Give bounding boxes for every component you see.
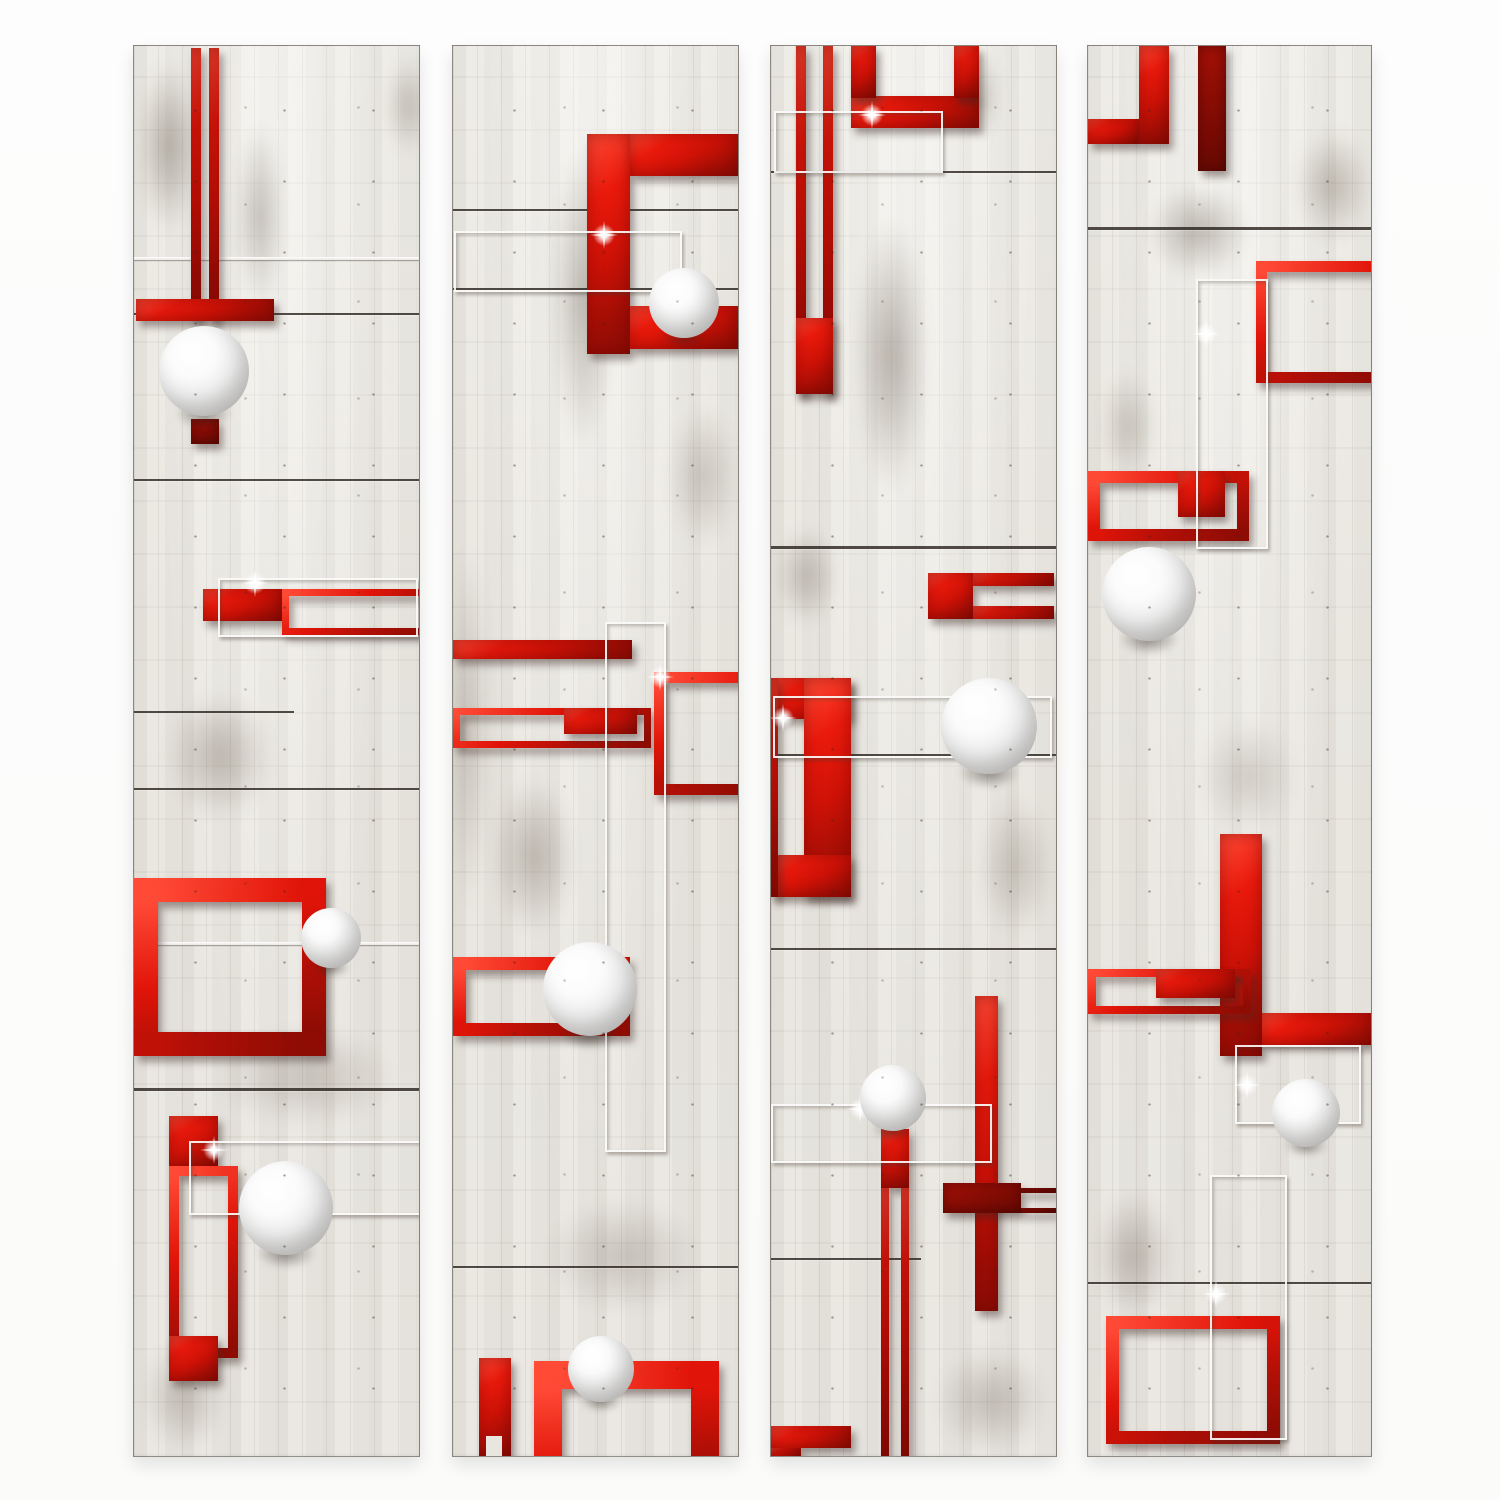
red-bar — [1139, 46, 1169, 144]
plank-seam — [771, 948, 1056, 950]
dark-red-bar — [1021, 1208, 1056, 1213]
silver-wire-frame — [454, 231, 682, 292]
texture-smudge — [133, 45, 214, 266]
silver-wire-frame — [218, 578, 418, 637]
plank-seam — [453, 1266, 738, 1268]
sparkle-icon — [770, 703, 798, 733]
panel-4 — [1087, 45, 1372, 1457]
plank-seam — [1088, 227, 1371, 230]
plank-seam — [134, 788, 419, 790]
texture-smudge — [961, 766, 1057, 966]
texture-smudge — [144, 666, 294, 846]
red-frame — [1256, 261, 1372, 383]
red-bar — [954, 46, 979, 98]
texture-smudge — [1278, 106, 1372, 266]
sparkle-icon — [1191, 319, 1221, 349]
red-bar — [796, 318, 833, 394]
dark-red-bar — [943, 1183, 1021, 1213]
texture-smudge — [653, 376, 739, 576]
plank-seam — [771, 546, 1056, 549]
dark-red-bar — [1198, 46, 1226, 171]
sphere — [568, 1336, 634, 1402]
sphere — [1102, 547, 1196, 641]
red-bar — [1156, 969, 1235, 998]
panel-2 — [452, 45, 739, 1457]
red-bar — [1220, 834, 1262, 1056]
plank-seam — [134, 1088, 419, 1091]
sparkle-icon — [240, 568, 270, 598]
red-bar — [771, 1426, 851, 1448]
red-bar — [630, 134, 738, 176]
red-bar — [901, 1188, 909, 1456]
texture-smudge — [911, 1326, 1057, 1457]
red-frame — [654, 672, 739, 795]
sphere — [860, 1065, 926, 1131]
red-bar — [771, 855, 851, 897]
dark-red-bar — [1021, 1188, 1056, 1193]
sphere — [543, 942, 637, 1036]
sphere — [649, 268, 719, 338]
texture-smudge — [374, 45, 420, 176]
red-bar — [851, 46, 876, 98]
silver-wire-frame — [1196, 279, 1268, 549]
silver-wire-frame — [605, 622, 666, 1152]
red-bar — [771, 1448, 801, 1456]
red-bar — [1262, 1013, 1372, 1045]
sphere — [1272, 1079, 1340, 1147]
silver-wire-frame — [774, 111, 943, 173]
texture-smudge — [473, 746, 593, 966]
plank-seam — [771, 1258, 921, 1260]
panel-3 — [770, 45, 1057, 1457]
sphere — [239, 1161, 333, 1255]
red-bar — [881, 1188, 889, 1456]
sparkle-icon — [1232, 1070, 1262, 1100]
red-bar — [973, 573, 1054, 586]
texture-smudge — [770, 506, 851, 646]
red-bar — [169, 1336, 218, 1381]
sphere — [941, 678, 1037, 774]
texture-smudge — [1128, 166, 1268, 296]
red-bar — [209, 48, 219, 321]
texture-smudge — [841, 166, 941, 546]
texture-smudge — [1178, 696, 1318, 856]
plank-seam — [134, 711, 294, 713]
texture-smudge — [513, 1176, 733, 1336]
sphere — [301, 908, 361, 968]
red-bar — [136, 299, 274, 321]
plank-seam — [134, 479, 419, 481]
red-bar — [928, 573, 973, 619]
sphere — [159, 326, 249, 416]
cutout-window — [486, 1436, 502, 1456]
red-bar — [973, 606, 1054, 619]
wallpaper-mural — [0, 0, 1500, 1500]
silver-wire-frame — [1210, 1175, 1287, 1440]
silver-line — [134, 257, 419, 260]
panel-1 — [133, 45, 420, 1457]
red-bar — [1088, 119, 1139, 144]
red-frame — [134, 878, 326, 1056]
red-bar — [191, 48, 201, 321]
